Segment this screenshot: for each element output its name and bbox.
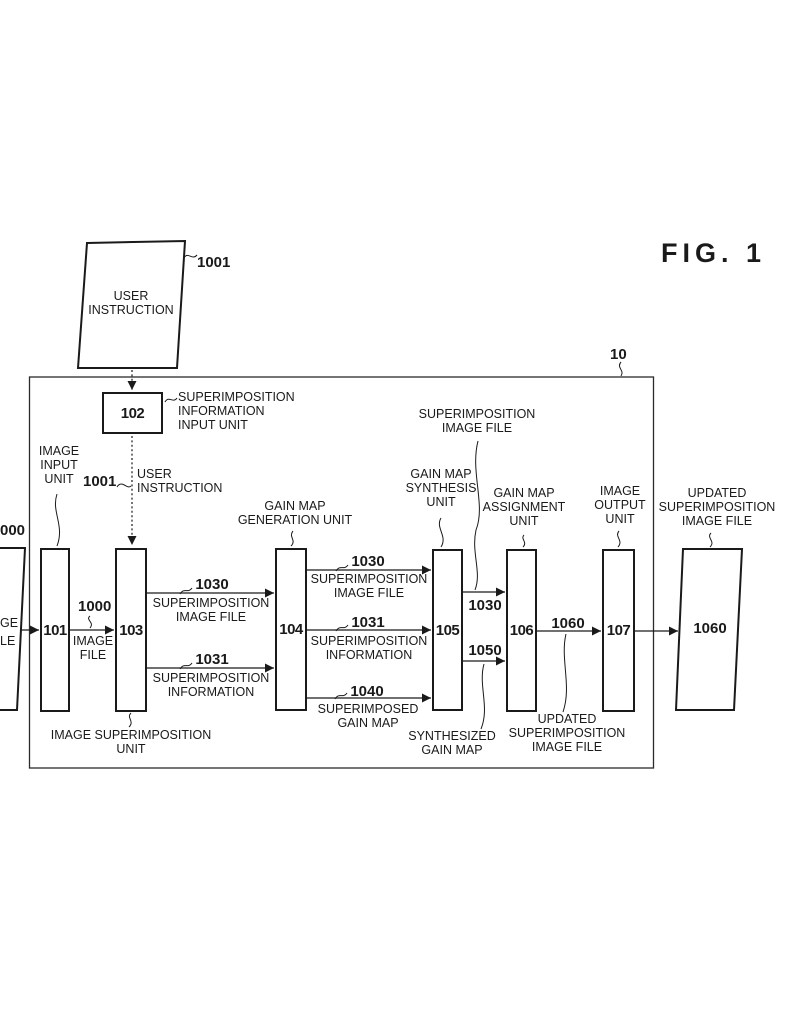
block-103-image-superimposition-unit: 103: [115, 548, 147, 712]
block-105-number: 105: [436, 622, 460, 639]
leader-label-102: [165, 398, 177, 402]
label-image-input-unit: IMAGE INPUT UNIT: [39, 444, 79, 487]
label-image-file: IMAGE FILE: [73, 634, 113, 662]
ref-1031-103-104: 1031: [195, 651, 228, 668]
leader-updated-file-top: [710, 533, 712, 547]
leader-gain-map-assignment: [523, 535, 525, 547]
label-image-superimposition-unit: IMAGE SUPERIMPOSITION UNIT: [51, 728, 211, 756]
label-superimposition-information-104-105: SUPERIMPOSITION INFORMATION: [311, 634, 428, 662]
label-updated-superimposition-image-file-bottom: UPDATED SUPERIMPOSITION IMAGE FILE: [509, 712, 626, 755]
leader-ref-10: [619, 362, 622, 376]
block-101-number: 101: [43, 622, 67, 639]
label-image-output-unit: IMAGE OUTPUT UNIT: [594, 484, 645, 527]
ref-1050: 1050: [468, 642, 501, 659]
label-superimposition-image-file-top: SUPERIMPOSITION IMAGE FILE: [419, 407, 536, 435]
ref-1030-105-106: 1030: [468, 597, 501, 614]
block-102-superimposition-information-input-unit: 102: [102, 392, 163, 434]
leader-ref-1001-mid: [117, 484, 131, 487]
ref-1030-104-105: 1030: [351, 553, 384, 570]
leader-ref-1001-top: [184, 255, 197, 258]
label-superimposed-gain-map: SUPERIMPOSED GAIN MAP: [318, 702, 419, 730]
leader-updated-file-bottom: [563, 634, 566, 712]
block-101-image-input-unit: 101: [40, 548, 70, 712]
ref-1031-104-105: 1031: [351, 614, 384, 631]
label-superimposition-image-file-103-104: SUPERIMPOSITION IMAGE FILE: [153, 596, 270, 624]
label-image-file-fragment-1: GE: [0, 616, 18, 630]
label-gain-map-assignment-unit: GAIN MAP ASSIGNMENT UNIT: [483, 486, 566, 529]
ref-1000-cutoff-fragment: 000: [0, 522, 25, 539]
leader-superimposition-image-file-to-1030: [475, 441, 480, 590]
ref-1000: 1000: [78, 598, 111, 615]
label-user-instruction-mid: USER INSTRUCTION: [137, 467, 222, 495]
ref-1030-103-104: 1030: [195, 576, 228, 593]
block-102-number: 102: [121, 405, 145, 422]
label-image-file-fragment-2: LE: [0, 634, 15, 648]
block-103-number: 103: [119, 622, 143, 639]
label-superimposition-information-103-104: SUPERIMPOSITION INFORMATION: [153, 671, 270, 699]
block-106-number: 106: [510, 622, 534, 639]
block-105-gain-map-synthesis-unit: 105: [432, 549, 463, 711]
figure-label: FIG. 1: [661, 238, 766, 269]
ref-1060-flow: 1060: [551, 615, 584, 632]
block-107-number: 107: [607, 622, 631, 639]
ref-1040: 1040: [350, 683, 383, 700]
ref-1001-top: 1001: [197, 254, 230, 271]
leader-synthesized-gain-map: [481, 664, 484, 729]
ref-1001-mid: 1001: [83, 473, 116, 490]
label-superimposition-image-file-104-105: SUPERIMPOSITION IMAGE FILE: [311, 572, 428, 600]
leader-image-input-unit: [55, 494, 59, 546]
block-104-number: 104: [279, 621, 303, 638]
leader-gain-map-synthesis: [439, 518, 443, 547]
label-synthesized-gain-map: SYNTHESIZED GAIN MAP: [408, 729, 496, 757]
ref-10-system: 10: [610, 346, 627, 363]
leader-image-output: [618, 531, 620, 547]
leader-ref-1000: [89, 616, 92, 628]
label-gain-map-synthesis-unit: GAIN MAP SYNTHESIS UNIT: [406, 467, 477, 510]
block-104-gain-map-generation-unit: 104: [275, 548, 307, 711]
label-updated-superimposition-image-file-top: UPDATED SUPERIMPOSITION IMAGE FILE: [659, 486, 776, 529]
label-user-instruction-top: USER INSTRUCTION: [88, 289, 173, 317]
leader-gain-map-generation: [291, 531, 293, 546]
leader-image-superimposition-unit: [129, 713, 131, 727]
ref-1060-output: 1060: [693, 620, 726, 637]
block-106-gain-map-assignment-unit: 106: [506, 549, 537, 712]
patent-figure-page: 102 101 103 104 105 106 107 FIG. 1 10 US…: [0, 0, 794, 1024]
block-107-image-output-unit: 107: [602, 549, 635, 712]
label-superimposition-information-input-unit: SUPERIMPOSITION INFORMATION INPUT UNIT: [178, 390, 295, 433]
label-gain-map-generation-unit: GAIN MAP GENERATION UNIT: [238, 499, 352, 527]
